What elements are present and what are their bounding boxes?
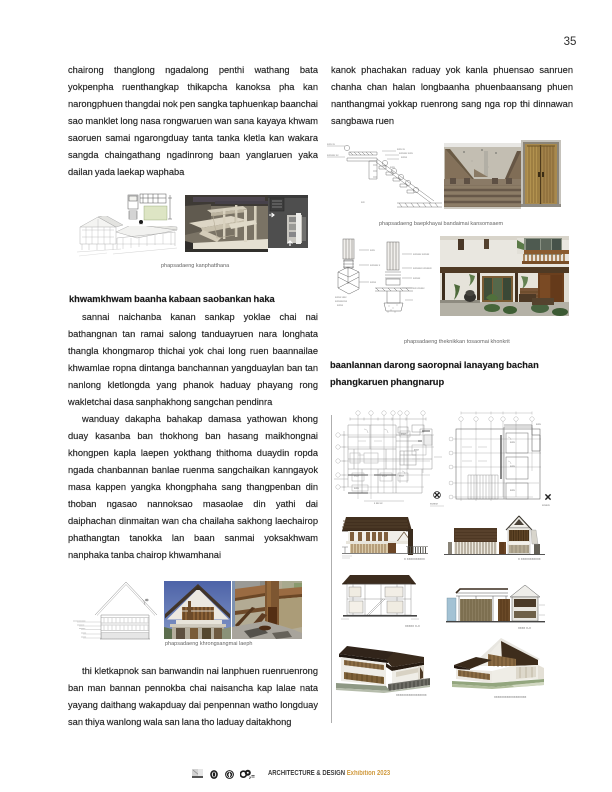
- svg-text:xxxxxxx xx: xxxxxxx xx: [327, 154, 339, 157]
- svg-text:xxxxxx: xxxxxx: [430, 503, 438, 506]
- svg-text:xxxx: xxxx: [354, 475, 360, 478]
- svg-text:xxxx: xxxx: [510, 489, 516, 492]
- svg-text:xxxxx: xxxxx: [81, 633, 87, 635]
- svg-text:xxxx: xxxx: [401, 433, 407, 436]
- svg-text:xxxx: xxxx: [354, 487, 360, 490]
- svg-text:xxx xxxxxx: xxx xxxxxx: [413, 287, 425, 290]
- svg-text:xxxxx: xxxxx: [337, 304, 344, 307]
- svg-text:xxxx: xxxx: [414, 449, 420, 452]
- svg-text:xxxx: xxxx: [390, 166, 396, 169]
- svg-text:xxxxx: xxxxx: [370, 281, 377, 284]
- svg-text:xxxxx xxxx: xxxxx xxxx: [335, 296, 347, 299]
- svg-text:xxxx: xxxx: [382, 475, 388, 478]
- svg-text:xxxxxxx: xxxxxxx: [77, 625, 85, 627]
- svg-text:xxxxxxxx xxxxxxx: xxxxxxxx xxxxxxx: [413, 267, 432, 270]
- svg-text:xxxxxxx xxxx: xxxxxxx xxxx: [399, 152, 414, 155]
- svg-text:40: 40: [145, 598, 149, 602]
- svg-text:xxxxxxx x: xxxxxxx x: [370, 264, 381, 267]
- svg-text:xxxx xx: xxxx xx: [327, 143, 336, 146]
- svg-text:xxxxxxxxxxxx: xxxxxxxxxxxx: [73, 621, 86, 623]
- svg-text:xxxxxx: xxxxxx: [79, 628, 86, 630]
- svg-text:xxx: xxx: [361, 201, 365, 204]
- svg-text:x xxx xx: x xxx xx: [374, 502, 383, 505]
- svg-text:xxxx: xxxx: [510, 441, 516, 444]
- svg-text:xxxxxx: xxxxxx: [413, 277, 421, 280]
- svg-text:xxxx xx: xxxx xx: [397, 148, 406, 151]
- svg-text:xxxxxxx xxxxxx: xxxxxxx xxxxxx: [413, 253, 430, 256]
- svg-text:xxxx: xxxx: [510, 465, 516, 468]
- svg-text:xxxxx: xxxxx: [401, 156, 408, 159]
- svg-text:xxxxx: xxxxx: [81, 637, 87, 639]
- svg-text:xxxxxxxxxx: xxxxxxxxxx: [335, 300, 348, 303]
- svg-text:xxxx: xxxx: [370, 249, 376, 252]
- svg-text:xxxx: xxxx: [399, 475, 405, 478]
- svg-text:xxxx: xxxx: [536, 423, 542, 426]
